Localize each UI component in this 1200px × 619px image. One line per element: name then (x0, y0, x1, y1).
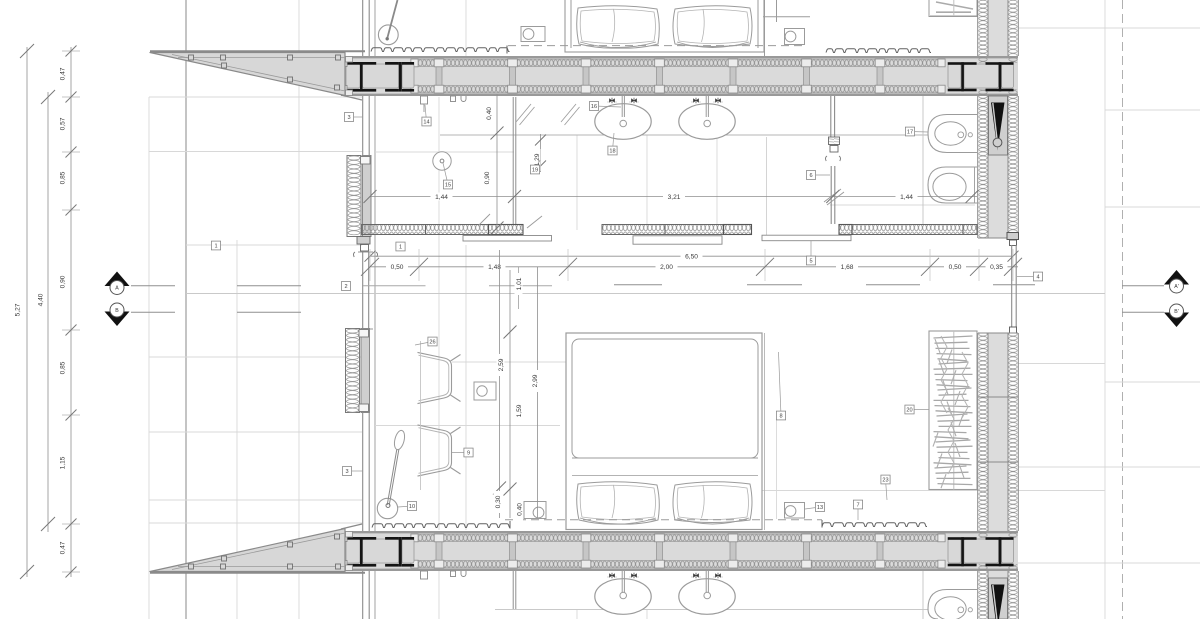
svg-text:A: A (115, 286, 119, 292)
svg-text:0,35: 0,35 (990, 264, 1003, 271)
svg-text:0,40: 0,40 (516, 503, 523, 516)
svg-text:B: B (115, 308, 119, 314)
svg-text:26: 26 (429, 340, 435, 346)
svg-text:19: 19 (532, 168, 538, 174)
svg-text:10: 10 (409, 504, 415, 510)
svg-text:2,99: 2,99 (532, 374, 539, 387)
svg-text:0,30: 0,30 (495, 495, 502, 508)
svg-text:3: 3 (347, 115, 350, 121)
svg-text:1,15: 1,15 (60, 456, 67, 469)
svg-text:5: 5 (809, 259, 812, 265)
svg-text:18: 18 (609, 149, 615, 155)
svg-text:0,90: 0,90 (484, 171, 491, 184)
svg-text:1: 1 (399, 245, 402, 251)
svg-text:13: 13 (817, 505, 823, 511)
svg-text:9: 9 (467, 451, 470, 457)
svg-text:B': B' (1174, 309, 1178, 315)
svg-text:5,27: 5,27 (15, 303, 22, 316)
svg-text:17: 17 (907, 130, 913, 136)
svg-text:3: 3 (345, 469, 348, 475)
svg-text:1,44: 1,44 (435, 194, 448, 201)
svg-text:1,59: 1,59 (516, 404, 523, 417)
svg-text:0,85: 0,85 (60, 171, 67, 184)
svg-text:0,90: 0,90 (60, 275, 67, 288)
svg-text:1,44: 1,44 (900, 194, 913, 201)
svg-text:14: 14 (423, 120, 429, 126)
svg-text:0,57: 0,57 (60, 117, 67, 130)
svg-text:0,85: 0,85 (60, 361, 67, 374)
svg-text:0,50: 0,50 (949, 264, 962, 271)
svg-text:23: 23 (882, 478, 888, 484)
svg-text:A': A' (1174, 284, 1178, 290)
svg-text:2,00: 2,00 (660, 264, 673, 271)
svg-text:15: 15 (445, 183, 451, 189)
svg-text:8: 8 (779, 414, 782, 420)
svg-text:2,59: 2,59 (498, 358, 505, 371)
svg-text:3,21: 3,21 (668, 194, 681, 201)
svg-text:2: 2 (344, 284, 347, 290)
svg-text:16: 16 (591, 104, 597, 110)
svg-text:4: 4 (1036, 275, 1039, 281)
svg-text:0,47: 0,47 (60, 67, 67, 80)
svg-text:1,01: 1,01 (516, 277, 523, 290)
svg-text:0,50: 0,50 (391, 264, 404, 271)
svg-text:6,50: 6,50 (685, 254, 698, 261)
svg-text:1,68: 1,68 (841, 264, 854, 271)
svg-text:0,47: 0,47 (60, 541, 67, 554)
svg-text:20: 20 (906, 408, 912, 414)
svg-text:1: 1 (214, 244, 217, 250)
svg-text:0,40: 0,40 (486, 107, 493, 120)
svg-text:6: 6 (809, 173, 812, 179)
svg-text:4,40: 4,40 (38, 293, 45, 306)
svg-text:7: 7 (856, 503, 859, 509)
